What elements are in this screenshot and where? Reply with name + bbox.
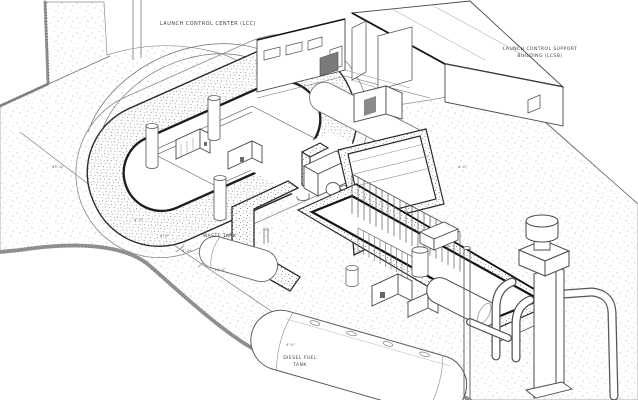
pressure-tank	[412, 247, 428, 277]
dim-label: 4'-0"	[458, 165, 468, 169]
label-waste-tank: WASTE TANK	[203, 233, 237, 239]
dim-label: 4'-0"	[134, 218, 144, 222]
drawing-canvas: LAUNCH CONTROL CENTER (LCC) LAUNCH CONTR…	[0, 0, 638, 400]
dim-label: 45'-0"	[52, 165, 64, 169]
label-lcc: LAUNCH CONTROL CENTER (LCC)	[160, 21, 256, 27]
dim-label: 14'-0"	[214, 268, 226, 272]
label-lcsb-line2: BUILDING (LCSB)	[517, 53, 562, 59]
label-diesel-line2: TANK	[292, 362, 307, 368]
isometric-cutaway-drawing: LAUNCH CONTROL CENTER (LCC) LAUNCH CONTR…	[0, 0, 638, 400]
dim-label: 4'-0"	[286, 343, 296, 347]
label-diesel-line1: DIESEL FUEL	[283, 355, 316, 361]
label-lcsb-line1: LAUNCH CONTROL SUPPORT	[503, 46, 577, 52]
dim-label: 5'-0"	[182, 249, 192, 253]
dim-label: 4'-0"	[160, 234, 170, 238]
small-tank	[346, 266, 358, 287]
